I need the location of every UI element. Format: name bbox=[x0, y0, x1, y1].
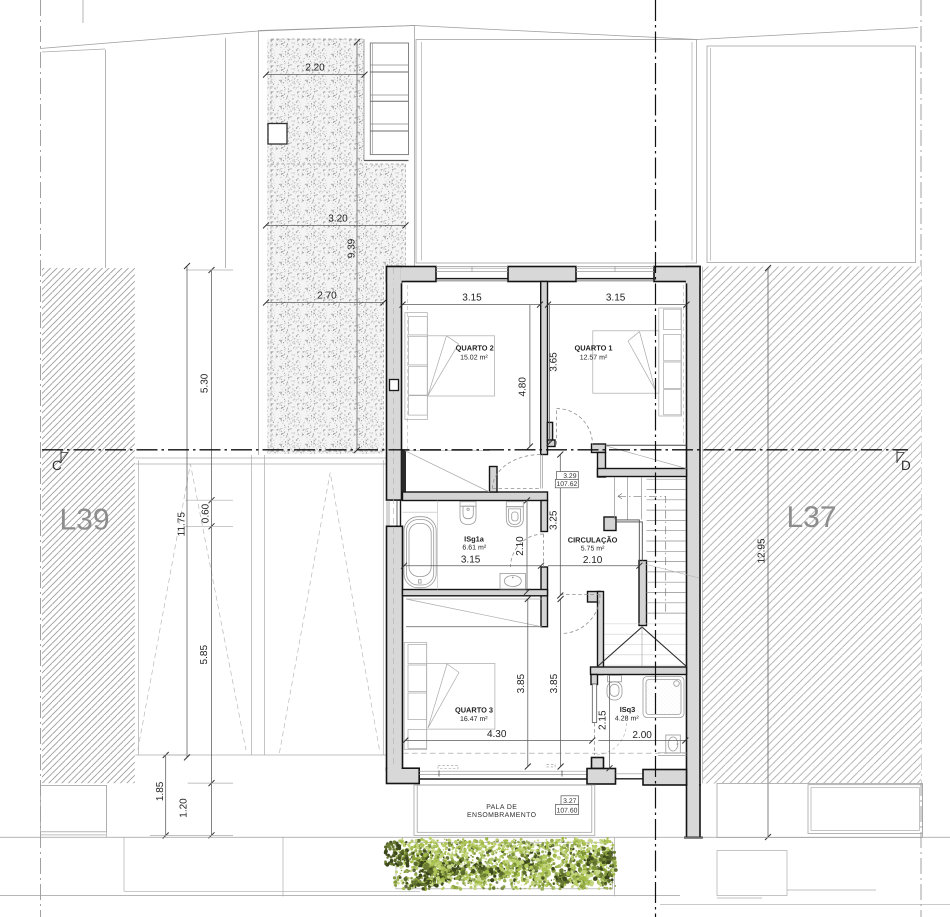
svg-text:ENSOMBRAMENTO: ENSOMBRAMENTO bbox=[467, 812, 537, 819]
svg-text:2.15: 2.15 bbox=[597, 710, 608, 730]
svg-text:2.20: 2.20 bbox=[305, 63, 325, 74]
svg-text:4.80: 4.80 bbox=[517, 377, 528, 397]
svg-text:QUARTO 2: QUARTO 2 bbox=[456, 344, 494, 353]
svg-text:0.60: 0.60 bbox=[200, 503, 211, 523]
svg-text:3.15: 3.15 bbox=[462, 293, 482, 304]
svg-text:3.15: 3.15 bbox=[606, 293, 626, 304]
svg-text:15.02 m²: 15.02 m² bbox=[460, 354, 488, 361]
svg-text:107.60: 107.60 bbox=[557, 807, 578, 814]
svg-text:L39: L39 bbox=[59, 504, 109, 537]
svg-text:1.20: 1.20 bbox=[179, 798, 190, 818]
svg-text:4.28 m²: 4.28 m² bbox=[615, 716, 639, 723]
svg-text:QUARTO 1: QUARTO 1 bbox=[574, 344, 612, 353]
svg-text:3.15: 3.15 bbox=[461, 555, 481, 566]
svg-text:2.10: 2.10 bbox=[515, 536, 526, 556]
svg-text:5.85: 5.85 bbox=[199, 645, 210, 665]
svg-text:4.30: 4.30 bbox=[487, 729, 507, 740]
svg-text:1.85: 1.85 bbox=[155, 781, 166, 801]
svg-text:C: C bbox=[52, 458, 62, 473]
svg-text:3.29: 3.29 bbox=[563, 473, 576, 480]
svg-text:5.30: 5.30 bbox=[200, 373, 211, 393]
svg-text:3.85: 3.85 bbox=[516, 673, 527, 693]
svg-text:3.27: 3.27 bbox=[563, 798, 576, 805]
svg-text:16.47 m²: 16.47 m² bbox=[460, 716, 488, 723]
svg-text:PALA DE: PALA DE bbox=[486, 804, 517, 811]
svg-text:ISg1a: ISg1a bbox=[464, 535, 485, 544]
svg-text:3.65: 3.65 bbox=[549, 352, 560, 372]
svg-text:ISq3: ISq3 bbox=[620, 705, 636, 714]
svg-text:CIRCULAÇÃO: CIRCULAÇÃO bbox=[568, 536, 618, 545]
svg-text:3.85: 3.85 bbox=[549, 673, 560, 693]
svg-text:2.10: 2.10 bbox=[583, 555, 603, 566]
svg-text:2.70: 2.70 bbox=[317, 290, 337, 301]
svg-text:6.61 m²: 6.61 m² bbox=[462, 545, 486, 552]
svg-text:12.95: 12.95 bbox=[757, 538, 768, 563]
svg-text:L37: L37 bbox=[786, 501, 836, 534]
svg-text:D: D bbox=[901, 458, 911, 473]
svg-text:12.57 m²: 12.57 m² bbox=[580, 354, 608, 361]
svg-text:107.62: 107.62 bbox=[557, 481, 578, 488]
svg-text:5.75 m²: 5.75 m² bbox=[581, 546, 605, 553]
svg-text:2.00: 2.00 bbox=[632, 730, 652, 741]
svg-text:3.25: 3.25 bbox=[549, 510, 560, 530]
svg-text:9.39: 9.39 bbox=[347, 238, 358, 258]
svg-text:QUARTO 3: QUARTO 3 bbox=[455, 706, 493, 715]
svg-text:11.75: 11.75 bbox=[176, 512, 187, 537]
svg-text:3.20: 3.20 bbox=[328, 213, 348, 224]
